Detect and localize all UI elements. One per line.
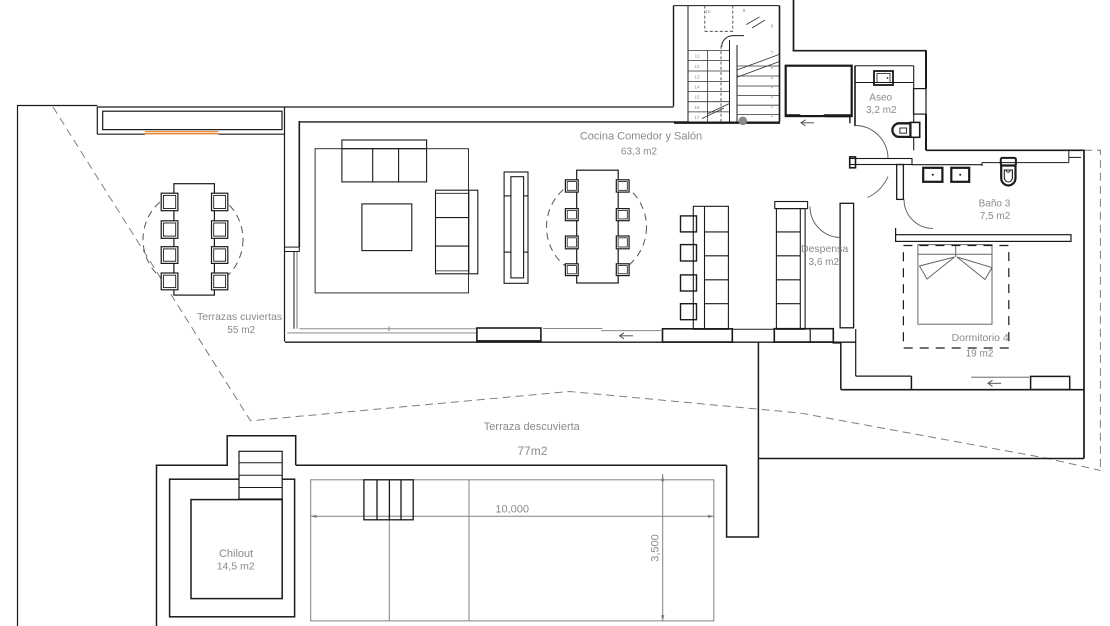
svg-text:3,2 m2: 3,2 m2 (866, 105, 897, 116)
svg-text:Despensa: Despensa (801, 243, 848, 255)
svg-text:63,3 m2: 63,3 m2 (621, 147, 658, 158)
svg-text:10: 10 (705, 9, 711, 14)
svg-text:16: 16 (694, 105, 700, 110)
svg-text:3,500: 3,500 (650, 534, 662, 562)
svg-text:12: 12 (694, 64, 700, 69)
svg-text:Chilout: Chilout (219, 548, 253, 560)
svg-text:Cocina Comedor y Salón: Cocina Comedor y Salón (580, 131, 702, 143)
svg-text:Terraza descuvierta: Terraza descuvierta (484, 421, 581, 433)
svg-text:15: 15 (694, 95, 700, 100)
svg-text:13: 13 (694, 75, 700, 80)
svg-text:7,5 m2: 7,5 m2 (980, 211, 1011, 222)
svg-text:Baño 3: Baño 3 (979, 199, 1011, 210)
svg-text:14,5 m2: 14,5 m2 (217, 561, 255, 573)
svg-text:14: 14 (694, 85, 700, 90)
svg-text:Terrazas cuviertas: Terrazas cuviertas (197, 311, 282, 323)
svg-text:17: 17 (694, 115, 700, 120)
svg-text:Aseo: Aseo (869, 93, 892, 104)
svg-text:55 m2: 55 m2 (227, 325, 255, 336)
svg-text:19 m2: 19 m2 (966, 349, 994, 360)
svg-text:Dormitorio 4: Dormitorio 4 (952, 332, 1009, 344)
svg-text:10,000: 10,000 (495, 504, 529, 516)
svg-text:3,6 m2: 3,6 m2 (809, 257, 840, 268)
svg-text:77m2: 77m2 (517, 444, 547, 458)
svg-text:11: 11 (695, 54, 700, 59)
